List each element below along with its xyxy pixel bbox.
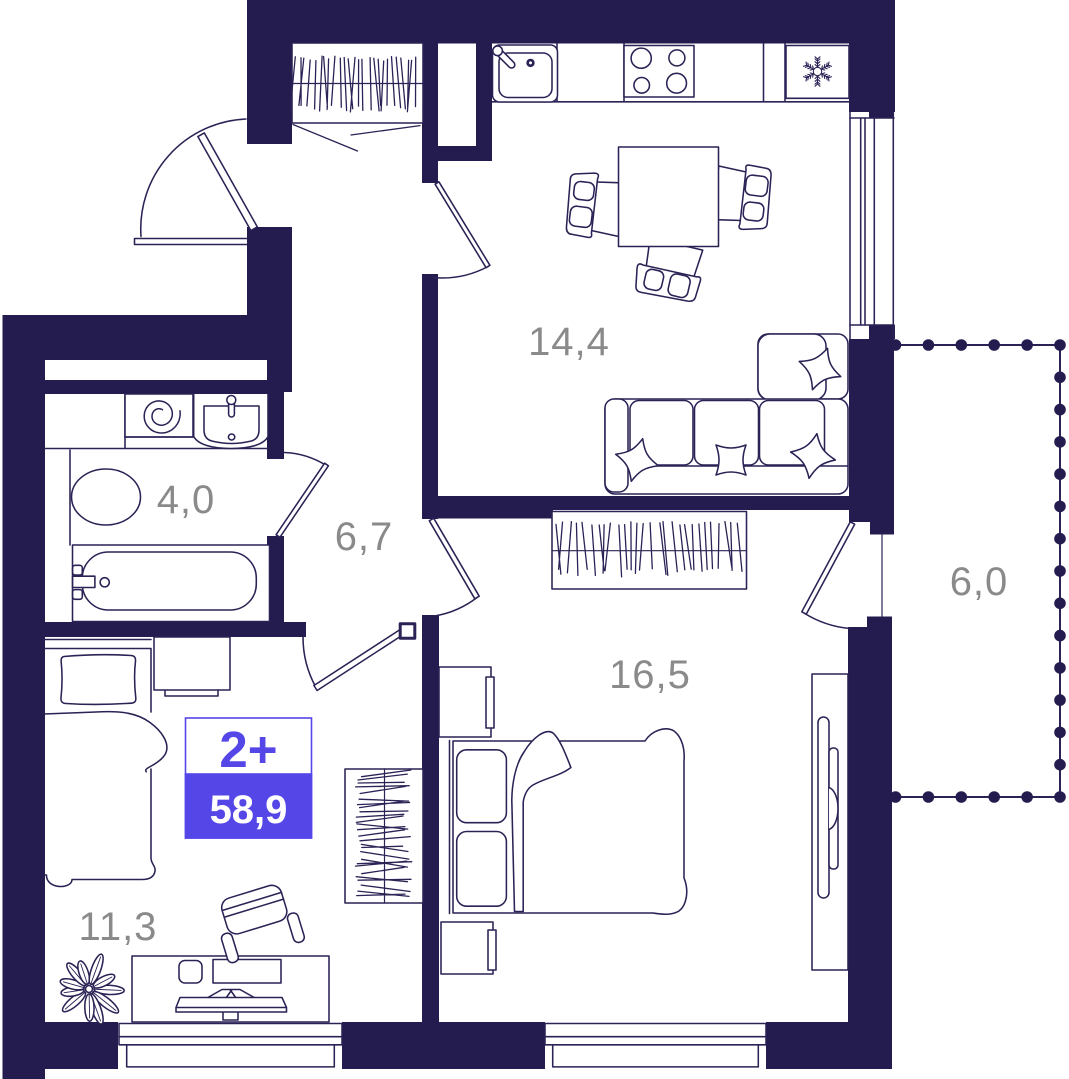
svg-text:11,3: 11,3: [79, 905, 158, 949]
svg-text:6,7: 6,7: [335, 515, 394, 559]
svg-text:16,5: 16,5: [609, 653, 691, 697]
svg-text:2+: 2+: [219, 721, 277, 778]
svg-text:6,0: 6,0: [950, 560, 1009, 604]
svg-text:4,0: 4,0: [157, 478, 216, 522]
svg-text:58,9: 58,9: [210, 788, 288, 832]
svg-text:14,4: 14,4: [528, 320, 610, 364]
